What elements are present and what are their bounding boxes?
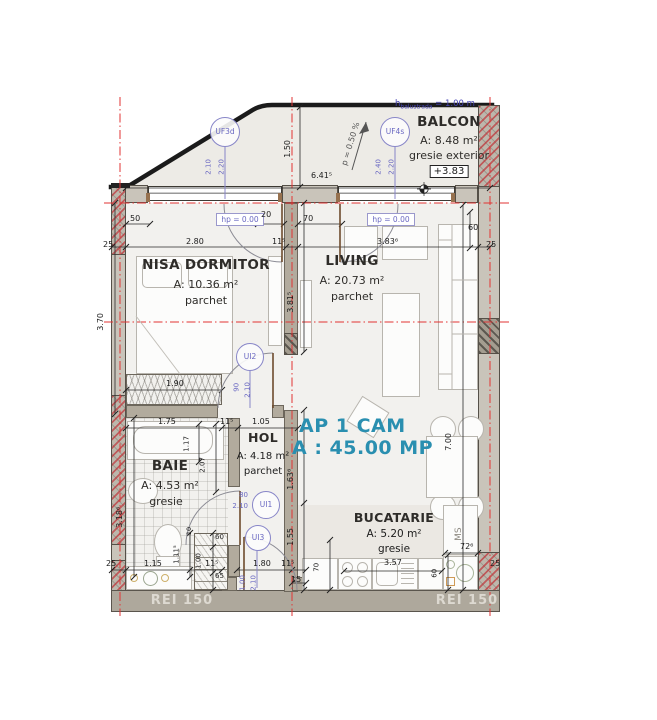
dim-60-shaft: 60	[215, 534, 224, 542]
ui2-height: 2.10	[244, 382, 252, 398]
dim-383: 3.83⁶	[377, 238, 398, 247]
hp-label-1: hp = 0.00	[221, 215, 258, 224]
dim-60-kitchen: 60	[431, 569, 439, 578]
hp-box-living: hp = 0.00	[367, 213, 415, 226]
dim-115-d: 11⁵	[281, 560, 294, 569]
apartment-area: A : 45.00 MP	[292, 438, 433, 459]
level-box: +3.83	[430, 165, 469, 178]
room-area-dormitor: A: 10.36 m²	[174, 279, 239, 291]
linework	[0, 0, 657, 720]
door-tag-ui2: UI2	[236, 343, 264, 371]
dim-115m: 1.15	[144, 560, 162, 569]
blanket-line	[136, 316, 180, 374]
dim-117: 1.17	[183, 436, 191, 452]
dim-25-bl: 25	[106, 560, 116, 569]
dim-318: 3.18⁶	[116, 507, 125, 528]
dim-60-right: 60	[468, 224, 478, 233]
dim-20: 20	[261, 211, 271, 220]
dim-115-c: 11⁵	[205, 560, 218, 569]
room-title-living: LIVING	[325, 254, 378, 269]
level-value: +3.83	[430, 166, 469, 177]
dim-175: 1.75	[158, 418, 176, 427]
window-tag-uf3d: UF3d	[210, 117, 240, 147]
dim-280: 2.80	[186, 238, 204, 247]
sofa-lines	[438, 225, 478, 389]
dim-70-top: 70	[303, 215, 313, 224]
dim-25-tl: 25	[103, 241, 113, 250]
dim-65-shaft: 65	[215, 573, 224, 581]
dim-100-shaft: 1.00	[195, 553, 203, 569]
room-finish-hol: parchet	[244, 466, 282, 477]
room-title-baie: BAIE	[152, 459, 188, 474]
dim-111: 1.11⁵	[173, 545, 181, 563]
dim-700: 7.00	[445, 433, 454, 451]
uf3d-height: 2.20	[218, 159, 226, 175]
level-marker	[417, 182, 431, 196]
fire-rating-left: REI 150	[151, 594, 213, 608]
room-title-dormitor: NISA DORMITOR	[142, 258, 270, 273]
dim-25-br: 25	[490, 560, 500, 569]
window-tag-uf4s: UF4s	[380, 117, 410, 147]
uf3d-label: UF3d	[215, 127, 234, 136]
hp-label-2: hp = 0.00	[372, 215, 409, 224]
dim-150: 1.50	[284, 140, 293, 158]
apartment-name: AP 1 CAM	[299, 416, 406, 437]
room-title-hol: HOL	[248, 431, 278, 445]
door-tag-ui3: UI3	[245, 525, 271, 551]
balustrade-eq: = 1.00 m	[432, 99, 474, 109]
dim-207: 2.07	[199, 457, 207, 473]
ui3-width: 1.00	[239, 575, 247, 591]
floor-plan: hbalustrada = 1.00 m BALCON A: 8.48 m² g…	[0, 0, 657, 720]
dim-105: 1.05	[252, 418, 270, 427]
door-tag-ui1: UI1	[252, 491, 280, 519]
dim-370: 3.70	[97, 313, 106, 331]
hp-box-dormitor: hp = 0.00	[216, 213, 264, 226]
room-finish-baie: gresie	[149, 496, 183, 508]
room-area-living: A: 20.73 m²	[320, 275, 385, 287]
dim-25-tr: 25	[486, 241, 496, 250]
room-finish-bucatarie: gresie	[378, 544, 410, 556]
ui2-width: 90	[233, 383, 241, 392]
fire-rating-right: REI 150	[436, 594, 498, 608]
dim-10: 10	[186, 527, 193, 535]
dim-381: 3.81⁵	[287, 292, 296, 313]
uf3d-width: 2.10	[205, 159, 213, 175]
dim-726: 72⁶	[460, 543, 473, 552]
room-title-balcon: BALCON	[417, 115, 481, 130]
uf4s-label: UF4s	[386, 127, 404, 136]
ui3-label: UI3	[252, 533, 264, 542]
room-area-bucatarie: A: 5.20 m²	[366, 529, 421, 541]
dim-190: 1.90	[166, 380, 184, 389]
ui1-height: 2.10	[224, 503, 248, 511]
room-area-baie: A: 4.53 m²	[141, 480, 199, 492]
washer-label: MS	[455, 527, 465, 540]
dim-50: 50	[130, 215, 140, 224]
dim-115-b: 11⁵	[220, 418, 233, 427]
dim-15: 15	[291, 576, 301, 585]
ui3-height: 2.10	[250, 575, 258, 591]
balustrade-sub: balustrada	[400, 104, 432, 111]
dim-115-a: 11⁵	[272, 238, 285, 247]
ui1-width: 80	[228, 492, 248, 500]
ui1-label: UI1	[260, 500, 272, 509]
room-finish-living: parchet	[331, 291, 373, 303]
dim-357: 3.57	[384, 559, 402, 568]
room-area-balcon: A: 8.48 m²	[420, 135, 478, 147]
dim-70-kitchen: 70	[313, 563, 321, 572]
ui2-label: UI2	[244, 352, 256, 361]
balustrade-note: hbalustrada = 1.00 m	[395, 99, 475, 111]
dim-641: 6.41⁵	[311, 172, 332, 181]
room-title-bucatarie: BUCATARIE	[354, 511, 434, 525]
uf4s-width: 2.40	[375, 159, 383, 175]
room-finish-balcon: gresie exterior	[409, 150, 489, 162]
uf4s-height: 2.20	[388, 159, 396, 175]
dim-155: 1.55	[287, 528, 296, 546]
dim-180: 1.80	[253, 560, 271, 569]
room-area-hol: A: 4.18 m²	[237, 451, 289, 462]
dim-163: 1.63⁶	[287, 469, 296, 490]
room-finish-dormitor: parchet	[185, 295, 227, 307]
